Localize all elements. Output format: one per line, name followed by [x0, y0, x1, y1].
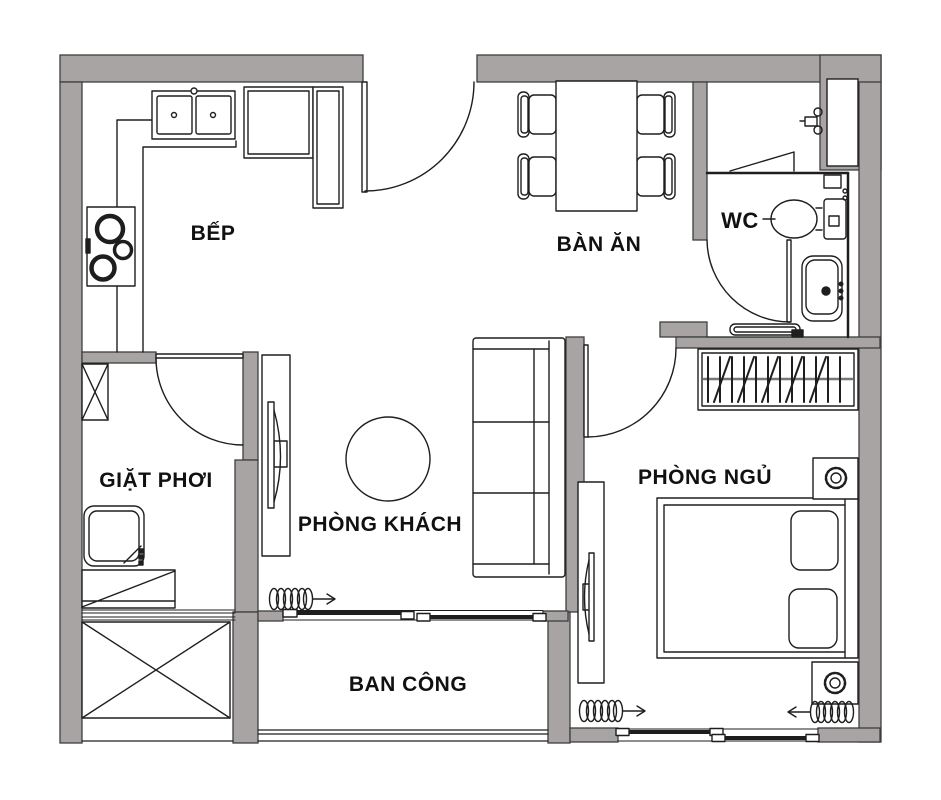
dining-chair-icon: [518, 92, 556, 137]
tv-cabinet-living: [262, 355, 290, 556]
furniture-layer: [82, 81, 858, 742]
balcony-railing-icon: [258, 730, 548, 741]
wc-accessory: [824, 175, 847, 200]
wall-left: [60, 82, 82, 743]
wall-laundry-right-upper: [243, 352, 258, 460]
tv-cabinet-bedroom: [578, 482, 604, 683]
fridge-icon: [244, 87, 313, 158]
curtain-coil-icon: [270, 589, 336, 610]
wc-door-icon: [707, 240, 791, 322]
dining-chair-icon: [518, 154, 556, 199]
laundry-door-icon: [156, 354, 243, 445]
dining-chair-icon: [637, 154, 675, 199]
lavabo-icon: [802, 256, 843, 321]
nightstand-lamp-icon: [812, 662, 858, 704]
curtain-coil-icon: [580, 701, 646, 722]
wall-laundry-top: [82, 352, 156, 363]
floor-plan: BẾP BÀN ĂN WC GIẶT PHƠI PHÒNG KHÁCH PHÒN…: [0, 0, 941, 800]
dining-table-icon: [556, 81, 637, 211]
nightstand-lamp-icon: [813, 458, 858, 499]
wall-wc-left: [693, 82, 707, 240]
pillow-icon: [791, 511, 838, 570]
toilet-icon: [771, 199, 846, 239]
wall-slide-stub-right: [543, 611, 568, 621]
tall-cabinet-icon: [313, 87, 343, 208]
sofa-icon: [473, 338, 565, 577]
wardrobe-icon: [698, 349, 858, 410]
round-rug-icon: [346, 417, 430, 501]
technical-shaft: [827, 79, 858, 166]
towel-bar-icon: [730, 324, 803, 337]
room-label-living: PHÒNG KHÁCH: [298, 512, 462, 536]
sliding-door-bedroom: [616, 729, 819, 742]
wall-slide-stub-left: [258, 611, 283, 621]
floor-plan-page: BẾP BÀN ĂN WC GIẶT PHƠI PHÒNG KHÁCH PHÒN…: [0, 0, 941, 800]
shower-faucet-icon: [800, 108, 822, 134]
entrance-door-icon: [362, 82, 474, 192]
wall-window-stub-right: [818, 728, 880, 742]
wall-balcony-left: [233, 612, 258, 743]
laundry-shelf: [82, 570, 175, 608]
wall-top-left: [60, 55, 363, 82]
pillow-icon: [789, 589, 837, 648]
room-label-laundry: GIẶT PHƠI: [99, 469, 212, 492]
room-label-kitchen: BẾP: [191, 222, 236, 245]
wall-bedroom-top: [676, 337, 880, 348]
sliding-door-living: [283, 610, 546, 622]
drying-rack-icon: [82, 364, 108, 420]
laundry-window-lines: [82, 610, 235, 620]
wall-window-stub-left: [570, 728, 618, 742]
bed-icon: [657, 498, 858, 658]
room-label-wc: WC: [721, 208, 759, 233]
washing-machine-icon: [84, 506, 144, 566]
room-label-balcony: BAN CÔNG: [349, 672, 467, 696]
dining-chair-icon: [637, 92, 675, 137]
cooktop-icon: [86, 207, 135, 286]
room-label-dining: BÀN ĂN: [557, 233, 642, 256]
utility-ledge-icon: [82, 622, 230, 718]
wall-right: [859, 82, 881, 742]
wall-hall-column: [660, 322, 707, 337]
bedroom-door-icon: [584, 345, 676, 437]
room-label-bedroom: PHÒNG NGỦ: [638, 465, 772, 489]
wall-bedroom-balcony-pier: [548, 612, 570, 743]
kitchen-sink-icon: [152, 88, 235, 139]
wall-laundry-right-lower: [235, 460, 258, 612]
